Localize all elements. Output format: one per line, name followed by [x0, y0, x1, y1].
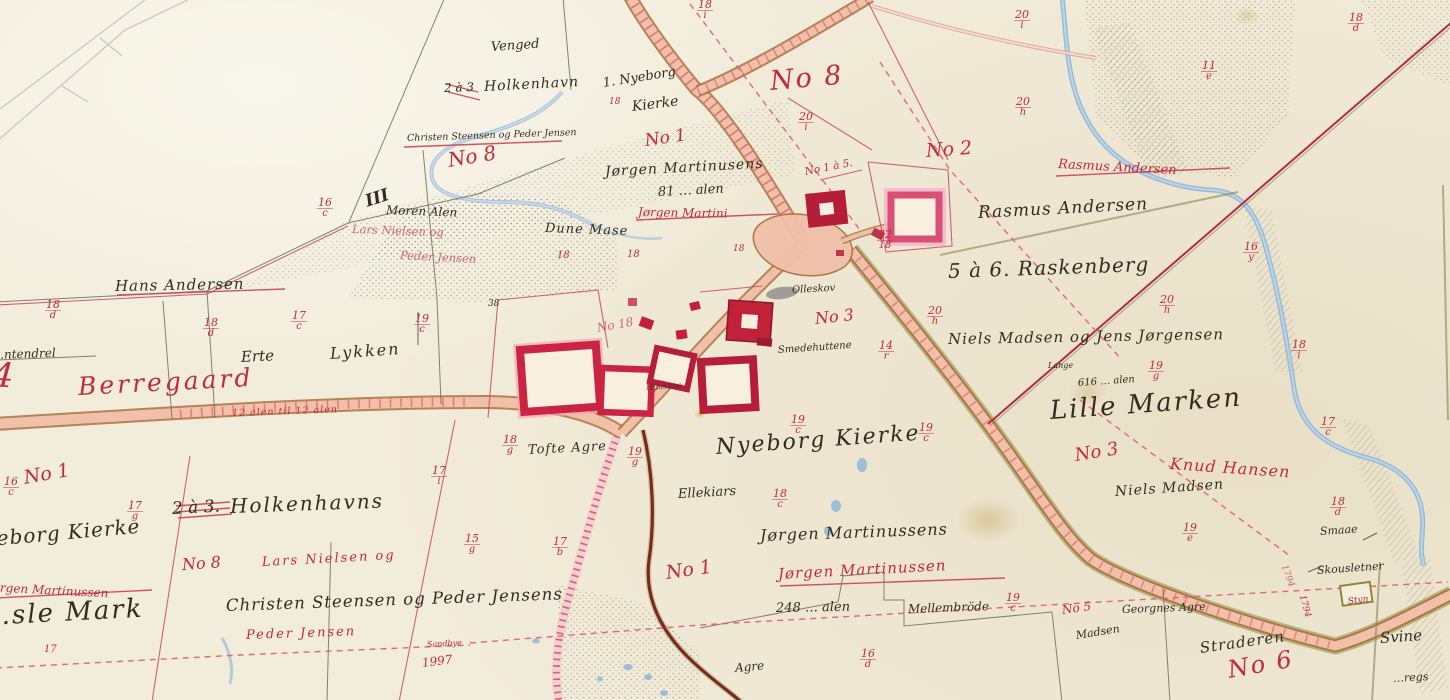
label-ellekiars: Ellekiars — [678, 485, 737, 501]
label-no8-top: No 8 — [769, 62, 845, 95]
fraction-19c-3: 19c — [918, 423, 934, 443]
cadastral-map: Venged 2 à 3 Holkenhavn 1. Nyeborg Kierk… — [0, 0, 1450, 700]
fraction-16d: 16d — [860, 649, 876, 669]
label-18-b: 18 — [627, 250, 640, 260]
fraction-18d-1: 18d — [45, 300, 61, 320]
farmstead-building — [726, 300, 773, 343]
farmstead-building — [886, 190, 944, 244]
fraction-18d-4: 18d — [1348, 13, 1364, 33]
fraction-19c-1: 19c — [414, 314, 430, 334]
fraction-11e: 11e — [1201, 61, 1217, 81]
label-81-alen: 81 … alen — [658, 183, 724, 199]
fraction-18d-2: 18d — [203, 318, 219, 338]
fraction-19g-2: 19g — [1148, 361, 1164, 381]
map-drawing — [0, 0, 1450, 700]
label-mellembrode: Mellembröde — [908, 600, 989, 615]
label-svine: Svine — [1379, 628, 1422, 646]
label-holkenhavns: Holkenhavns — [230, 491, 385, 516]
label-dune-mase: Dune Mase — [545, 222, 629, 238]
label-georgnes-agre: Georgnes Agre — [1122, 601, 1206, 615]
fraction-18c: 18c — [772, 489, 788, 509]
label-no2: No 2 — [925, 139, 972, 161]
fraction-17i: 17i — [431, 466, 447, 486]
label-red-4: 4 — [0, 358, 15, 393]
label-smaae: Smaae — [1320, 523, 1358, 537]
pencil-marks — [0, 0, 196, 142]
farmstead-building — [701, 359, 755, 410]
fraction-19g-1: 19g — [627, 447, 643, 467]
farmstead-building — [515, 339, 606, 417]
fraction-17c-2: 17c — [1320, 417, 1336, 437]
fraction-16c-2: 16c — [3, 477, 19, 497]
farmstead-building — [600, 368, 652, 414]
label-lange: Lange — [1048, 362, 1073, 370]
fraction-19e: 19e — [1182, 523, 1198, 543]
fraction-17g: 17g — [127, 501, 143, 521]
label-18-c: 18 — [609, 98, 620, 107]
fraction-20h-2: 20h — [927, 306, 943, 326]
label-no3-village: No 3 — [814, 307, 854, 327]
fraction-17b: 17b — [552, 537, 568, 557]
label-regs: …regs — [1393, 671, 1429, 684]
fraction-18g: 18g — [502, 435, 518, 455]
label-moren-alen: Moren Alen — [386, 204, 458, 218]
label-peder-jensen: Peder Jensen — [246, 625, 357, 642]
label-248-alen: 248 … alen — [776, 601, 850, 615]
label-venged: Venged — [491, 38, 540, 54]
label-tofte-agre: Tofte Agre — [528, 440, 608, 457]
fraction-17c-1: 17c — [291, 311, 307, 331]
label-lars-nielsen-mid: Lars Nielsen og — [352, 224, 444, 239]
fraction-20i-2: 20i — [1014, 10, 1030, 30]
fraction-18d-3: 18d — [1330, 497, 1346, 517]
label-agre: Agre — [734, 659, 764, 673]
label-38: 38 — [488, 300, 499, 309]
fraction-20h-1: 20h — [1015, 97, 1031, 117]
fraction-18i-1: 18i — [697, 0, 713, 20]
label-hans-andersen: Hans Andersen — [115, 277, 245, 294]
fraction-15g: 15g — [464, 534, 480, 554]
label-18-a: 18 — [557, 251, 570, 261]
label-18-d: 18 — [733, 245, 744, 254]
label-no8-bottom-left: No 8 — [181, 554, 221, 573]
fraction-19c-4: 19c — [1005, 593, 1021, 613]
farmstead-building — [805, 190, 848, 228]
label-two-three-top: 2 à 3 — [444, 81, 474, 94]
label-raskenberg: 5 à 6. Raskenberg — [948, 254, 1150, 281]
fraction-22-18: 2218 — [877, 230, 893, 250]
fraction-20h-3: 20h — [1159, 295, 1175, 315]
fraction-18i-2: 18i — [1291, 340, 1307, 360]
label-17-single: 17 — [44, 645, 57, 655]
label-jorgen-mid-red: Jørgen Martini — [638, 206, 728, 220]
label-1997: 1997 — [421, 653, 453, 669]
fraction-19c-2: 19c — [790, 415, 806, 435]
fraction-16c-1: 16c — [317, 198, 333, 218]
fraction-20i-1: 20i — [798, 112, 814, 132]
label-two-three-big: 2 à 3. — [172, 499, 221, 518]
fraction-14r: 14r — [878, 341, 894, 361]
fraction-16y: 16y — [1243, 242, 1259, 262]
